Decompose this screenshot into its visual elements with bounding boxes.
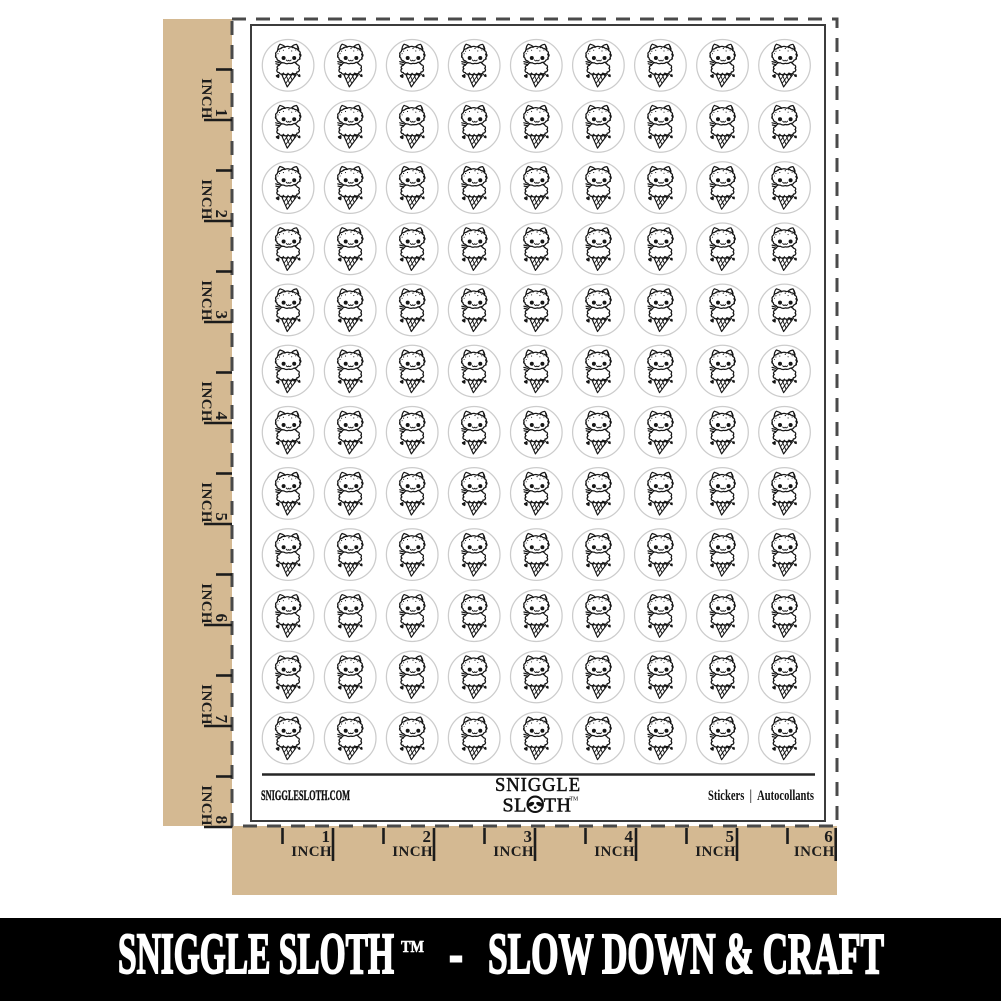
svg-text:SNIGGLE: SNIGGLE	[495, 774, 581, 796]
svg-text:INCH: INCH	[392, 844, 433, 860]
svg-text:INCH: INCH	[794, 844, 835, 860]
svg-text:SL: SL	[502, 795, 526, 817]
svg-text:SNIGGLESLOTH.COM: SNIGGLESLOTH.COM	[261, 788, 350, 804]
svg-text:INCH: INCH	[198, 684, 214, 725]
svg-text:INCH: INCH	[198, 482, 214, 523]
svg-text:INCH: INCH	[198, 78, 214, 119]
svg-text:INCH: INCH	[198, 280, 214, 321]
svg-text:Stickers | Autocollants: Stickers | Autocollants	[708, 788, 814, 804]
svg-text:INCH: INCH	[594, 844, 635, 860]
svg-text:INCH: INCH	[198, 785, 214, 826]
svg-text:SLOW DOWN & CRAFT: SLOW DOWN & CRAFT	[488, 921, 884, 986]
svg-text:-: -	[449, 921, 463, 986]
svg-text:INCH: INCH	[695, 844, 736, 860]
svg-text:INCH: INCH	[291, 844, 332, 860]
svg-text:TM: TM	[401, 937, 424, 956]
svg-text:TH: TH	[544, 795, 572, 817]
svg-text:TM: TM	[570, 797, 579, 803]
svg-text:INCH: INCH	[198, 381, 214, 422]
svg-text:INCH: INCH	[493, 844, 534, 860]
svg-text:INCH: INCH	[198, 179, 214, 220]
svg-text:SNIGGLE SLOTH: SNIGGLE SLOTH	[118, 921, 394, 986]
svg-text:INCH: INCH	[198, 583, 214, 624]
